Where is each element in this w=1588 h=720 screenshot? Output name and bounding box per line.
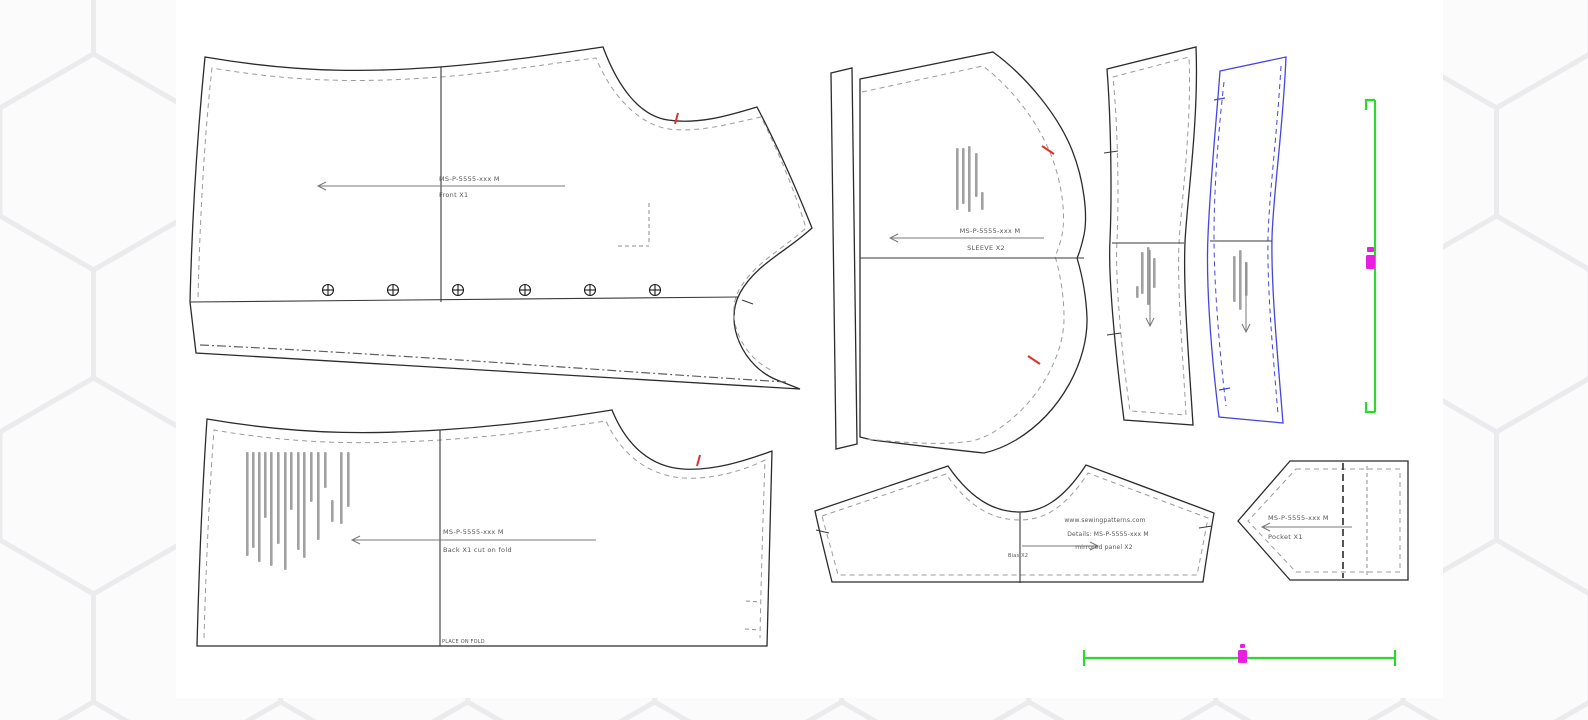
micro-text-line [324,452,327,488]
facing-band-piece [1207,57,1286,423]
micro-text-line [264,452,267,518]
buttonhole-icon [453,285,464,296]
sleeve-seam-allowance [862,66,1064,443]
micro-text-line [1153,258,1156,288]
micro-text-line [290,452,293,510]
facing-outline [1207,57,1286,423]
front-bodice-piece: MS-P-5555-xxx M Front X1 [190,47,812,389]
micro-text-line [962,148,965,204]
micro-text-line [1147,247,1150,305]
buttonhole-icon [323,285,334,296]
horizontal-scale-marker [1238,644,1247,663]
front-hem-foldline [200,345,786,382]
facing-label-microtext [1233,250,1248,310]
micro-text-line [956,148,959,210]
pocket-piece: MS-P-5555-xxx M Pocket X1 [1238,461,1408,580]
pattern-sheet: MS-P-5555-xxx M Front X1 MS-P-5555-xxx M… [176,0,1443,698]
yoke-url-label: www.sewingpatterns.com [1064,517,1145,524]
sleeve-outline [860,52,1087,453]
micro-text-line [981,192,984,210]
micro-text-line [1233,256,1236,302]
micro-text-line [340,452,343,524]
back-fold-footer-label: PLACE ON FOLD [442,639,485,645]
collar-band-piece [1104,47,1196,425]
yoke-extra-label: mirrored panel X2 [1075,544,1133,551]
micro-text-line [303,452,306,558]
back-edge-marks [745,601,760,630]
micro-text-line [252,452,255,548]
micro-text-line [1239,250,1242,310]
front-buttonhole-marks [323,285,661,296]
front-outline [190,47,812,389]
buttonhole-icon [650,285,661,296]
micro-text-line [310,452,313,502]
facing-bracket-ticks [1214,98,1230,390]
back-name-label: Back X1 cut on fold [443,546,512,554]
micro-text-line [246,452,249,556]
micro-text-line [258,452,261,562]
back-instructions-microtext [246,452,350,570]
micro-text-line [317,452,320,540]
front-name-label: Front X1 [439,191,469,199]
yoke-code-label: Details: MS-P-5555-xxx M [1067,531,1149,538]
yoke-grain-label: Bias X2 [1008,553,1028,559]
back-notch-icon [697,455,700,466]
yoke-seam-allowance [822,473,1208,575]
back-grain-line [352,536,596,544]
front-code-label: MS-P-5555-xxx M [439,175,500,183]
band-seam-allowance [1113,57,1190,415]
pocket-grain-line [1262,523,1352,531]
buttonhole-icon [520,285,531,296]
micro-text-line [277,452,280,544]
sleeve-piece: MS-P-5555-xxx M SLEEVE X2 [831,52,1087,453]
buttonhole-icon [585,285,596,296]
sleeve-grain-line [890,234,1044,242]
back-bodice-piece: MS-P-5555-xxx M Back X1 cut on fold PLAC… [197,410,772,646]
micro-text-line [270,452,273,566]
sleeve-instructions-microtext [956,146,984,212]
vertical-scale-marker [1366,247,1375,269]
band-label-microtext [1136,247,1156,305]
facing-stitch-line-right [1268,66,1281,414]
yoke-corner-ticks [816,526,1212,533]
micro-text-line [975,153,978,197]
pocket-code-label: MS-P-5555-xxx M [1268,514,1329,522]
micro-text-line [347,452,350,507]
facing-band-markings [1210,241,1272,332]
front-armhole-tick [742,300,753,304]
yoke-outline [815,465,1214,582]
yoke-piece: www.sewingpatterns.com Details: MS-P-555… [815,465,1214,583]
micro-text-line [297,452,300,550]
micro-text-line [331,500,334,522]
buttonhole-icon [388,285,399,296]
pattern-viewer: MS-P-5555-xxx M Front X1 MS-P-5555-xxx M… [0,0,1588,720]
sleeve-cuff-strip-outline [831,68,857,449]
micro-text-line [1141,252,1144,294]
pattern-drawing: MS-P-5555-xxx M Front X1 MS-P-5555-xxx M… [176,0,1443,698]
sleeve-lower-notch-icon [1028,356,1040,364]
micro-text-line [1136,286,1139,298]
micro-text-line [284,452,287,570]
sleeve-name-label: SLEEVE X2 [967,244,1005,252]
micro-text-line [968,146,971,212]
front-seam-allowance [198,58,806,371]
front-pocket-placement-guide [618,203,649,246]
pocket-name-label: Pocket X1 [1268,533,1303,541]
front-notch-icon [675,113,678,124]
sleeve-code-label: MS-P-5555-xxx M [960,227,1021,235]
back-code-label: MS-P-5555-xxx M [443,528,504,536]
front-waist-line [190,297,739,302]
micro-text-line [1245,262,1248,296]
